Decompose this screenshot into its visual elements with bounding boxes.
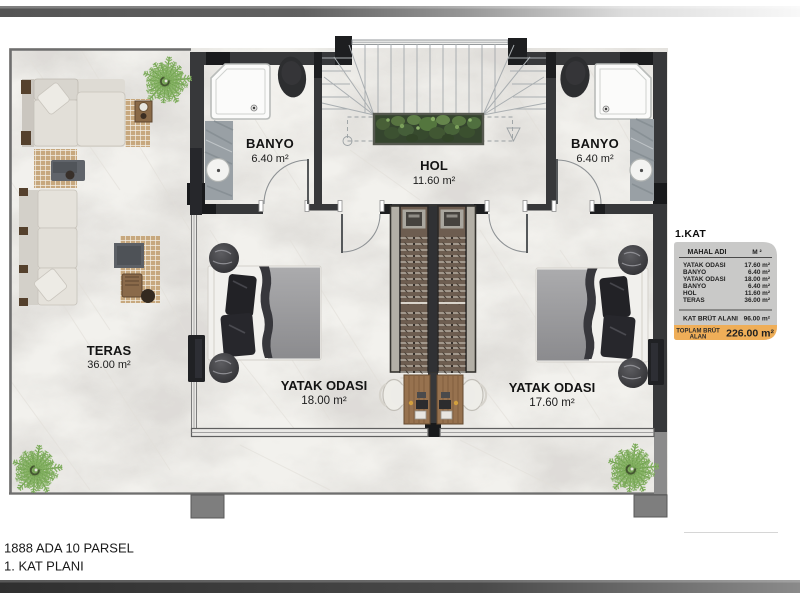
svg-text:17.60 m²: 17.60 m² (744, 262, 770, 269)
svg-text:MAHAL ADI: MAHAL ADI (688, 249, 727, 256)
svg-text:36.00 m²: 36.00 m² (87, 359, 131, 371)
svg-text:BANYO: BANYO (683, 269, 706, 276)
svg-text:11.60 m²: 11.60 m² (745, 290, 770, 297)
svg-text:TERAS: TERAS (87, 343, 132, 358)
svg-text:HOL: HOL (420, 158, 448, 173)
svg-text:TOPLAM BRÜT: TOPLAM BRÜT (676, 328, 720, 335)
svg-text:HOL: HOL (683, 290, 697, 297)
svg-text:YATAK ODASI: YATAK ODASI (509, 380, 595, 395)
svg-text:KAT BRÜT ALANI: KAT BRÜT ALANI (683, 314, 738, 323)
svg-text:BANYO: BANYO (571, 136, 619, 151)
svg-text:BANYO: BANYO (683, 283, 706, 290)
svg-text:YATAK ODASI: YATAK ODASI (683, 262, 726, 269)
svg-text:M ²: M ² (752, 249, 762, 256)
svg-text:1. KAT PLANI: 1. KAT PLANI (4, 559, 84, 574)
svg-text:6.40 m²: 6.40 m² (748, 283, 770, 290)
svg-text:226.00 m²: 226.00 m² (726, 328, 774, 340)
svg-text:6.40 m²: 6.40 m² (748, 269, 770, 276)
svg-text:1.KAT: 1.KAT (675, 228, 706, 240)
svg-text:BANYO: BANYO (246, 136, 294, 151)
svg-text:17.60 m²: 17.60 m² (529, 397, 575, 409)
svg-text:6.40 m²: 6.40 m² (251, 153, 289, 165)
svg-text:18.00 m²: 18.00 m² (744, 276, 770, 283)
svg-text:1888 ADA 10 PARSEL: 1888 ADA 10 PARSEL (4, 541, 134, 556)
svg-text:YATAK ODASI: YATAK ODASI (683, 276, 726, 283)
svg-text:TERAS: TERAS (683, 297, 705, 304)
svg-text:ALAN: ALAN (690, 335, 707, 341)
svg-text:36.00 m²: 36.00 m² (744, 297, 770, 304)
svg-text:96.00 m²: 96.00 m² (744, 316, 771, 323)
svg-text:YATAK ODASI: YATAK ODASI (281, 378, 367, 393)
svg-text:18.00 m²: 18.00 m² (301, 395, 347, 407)
svg-text:11.60 m²: 11.60 m² (413, 175, 456, 187)
svg-text:6.40 m²: 6.40 m² (576, 153, 614, 165)
